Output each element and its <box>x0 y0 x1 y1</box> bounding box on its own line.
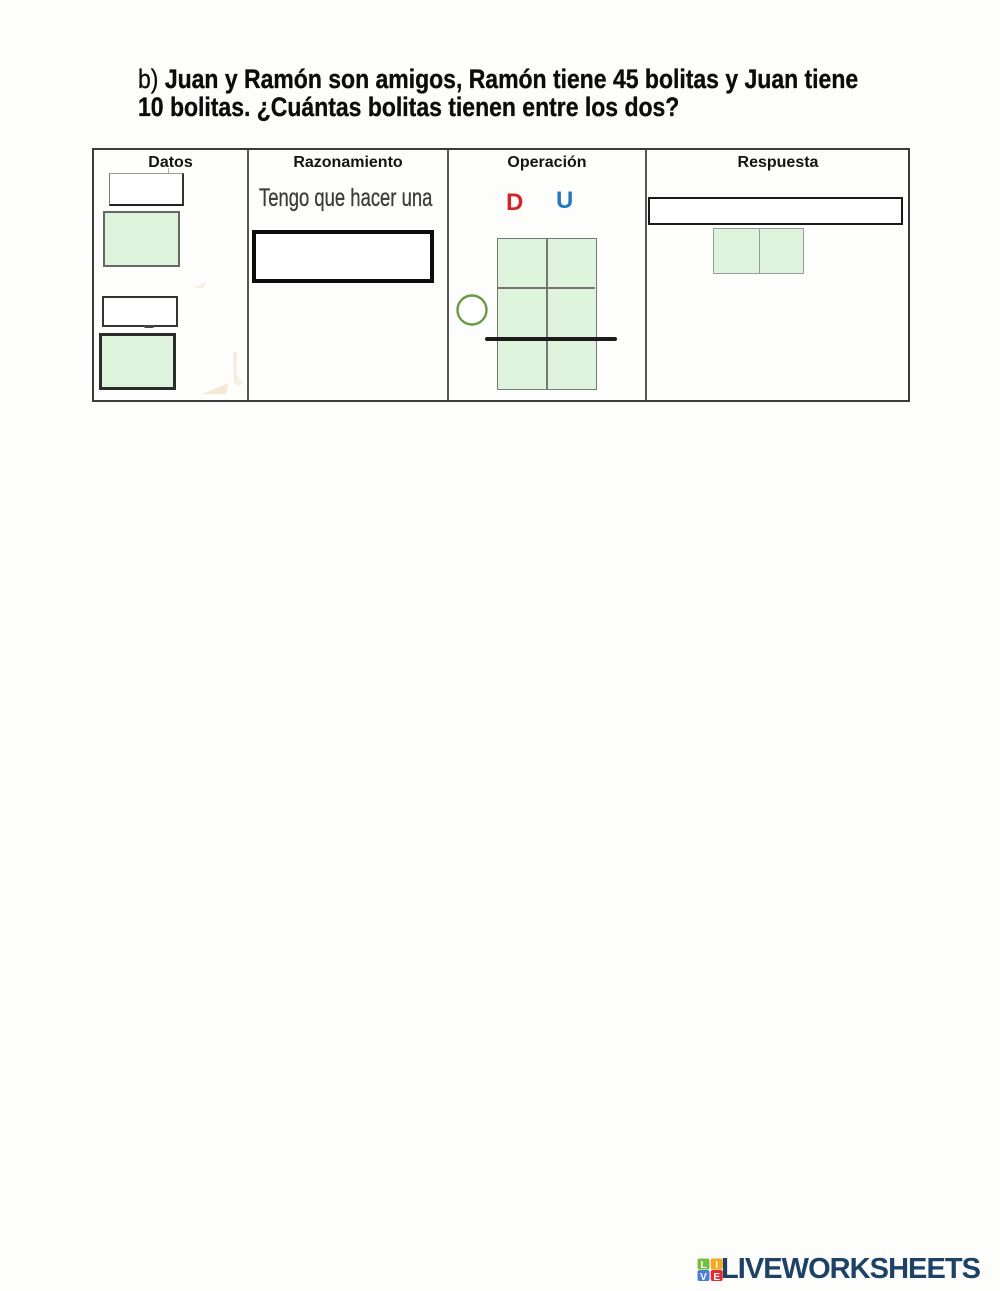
svg-text:I: I <box>715 1260 718 1271</box>
svg-text:L: L <box>700 1260 706 1271</box>
svg-text:E: E <box>713 1272 720 1282</box>
svg-text:V: V <box>700 1272 707 1282</box>
